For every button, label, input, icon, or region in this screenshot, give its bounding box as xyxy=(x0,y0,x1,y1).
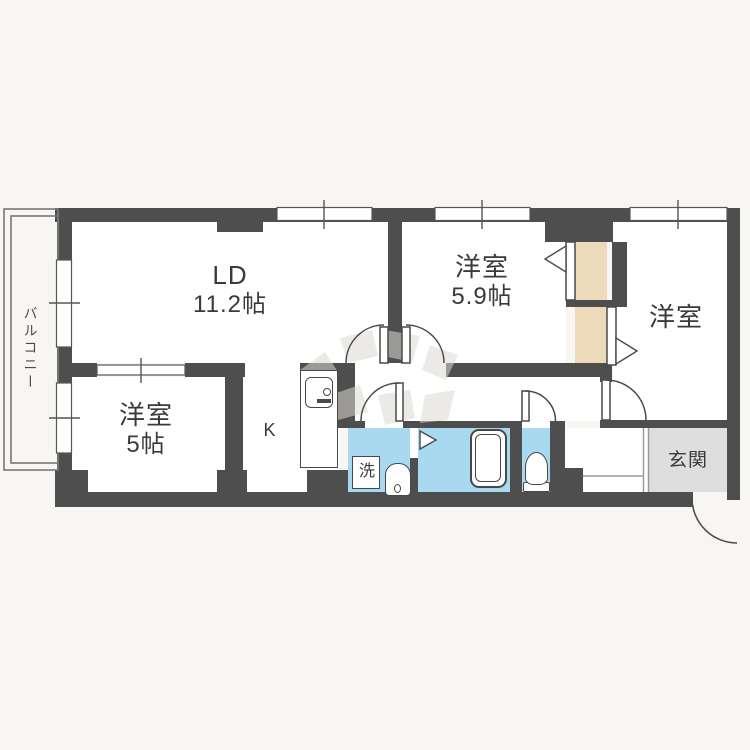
kitchen-label: K xyxy=(255,420,285,441)
washing-machine-label: 洗 xyxy=(353,463,381,482)
room-name: LD xyxy=(212,260,247,290)
door-leaf xyxy=(522,391,529,421)
entrance-label: 玄関 xyxy=(649,450,727,472)
door-arc-toilet xyxy=(526,391,556,421)
bedroom-c-label: 洋室 5帖 xyxy=(78,400,214,459)
washbasin-drain xyxy=(394,484,401,493)
living-dining-label: LD 11.2帖 xyxy=(140,260,320,319)
room-size: 5.9帖 xyxy=(398,283,566,311)
washing-machine-box: 洗 xyxy=(352,456,380,489)
room-size: 11.2帖 xyxy=(140,291,320,319)
washbasin-icon xyxy=(385,463,411,496)
balcony-label: バルコニー xyxy=(22,288,39,408)
closet-door-leaf xyxy=(566,242,575,300)
faucet-icon xyxy=(323,388,331,396)
door-leaf xyxy=(380,327,388,363)
room-name: 洋室 xyxy=(649,302,703,332)
room-name: 洋室 xyxy=(455,252,509,282)
toilet-bowl xyxy=(525,452,548,485)
bathtub-inner xyxy=(475,434,501,482)
floorplan: 洗 バルコニー LD 11.2帖 洋室 5.9帖 洋室 洋室 5帖 K 玄関 xyxy=(0,0,750,750)
bedroom-a-label: 洋室 5.9帖 xyxy=(398,252,566,311)
bathroom-door-triangle xyxy=(420,431,436,449)
door-leaf xyxy=(602,380,610,420)
closet-door-leaf xyxy=(607,307,616,365)
door-arc-entrance xyxy=(692,498,737,543)
door-leaf xyxy=(402,327,410,363)
room-name: 玄関 xyxy=(668,450,708,471)
entry-step-lines xyxy=(583,428,649,492)
door-leaf xyxy=(396,383,403,421)
bedroom-b-label: 洋室 xyxy=(616,302,736,333)
plan-linework xyxy=(0,0,750,750)
room-name: K xyxy=(263,420,276,440)
room-size: 5帖 xyxy=(78,431,214,459)
sink-drain-bar xyxy=(317,399,331,403)
closet-b-door-triangle xyxy=(616,338,637,364)
bathtub-icon xyxy=(470,429,507,488)
room-name: 洋室 xyxy=(119,400,173,430)
door-arc-bedroom-b xyxy=(606,380,646,420)
